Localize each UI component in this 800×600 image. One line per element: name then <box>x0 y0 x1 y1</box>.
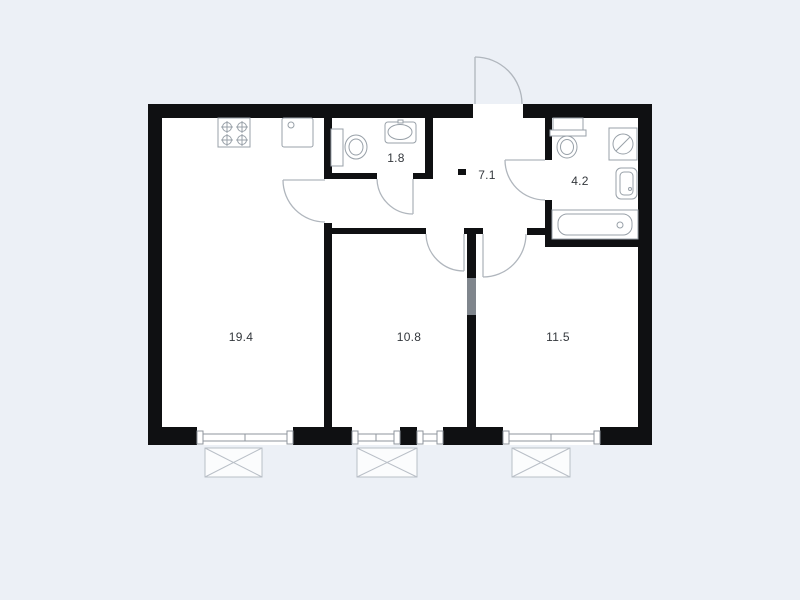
area-label-bathroom: 4.2 <box>571 174 589 188</box>
area-label-living-kitchen: 19.4 <box>229 330 254 344</box>
window-bedroom-right <box>503 427 600 445</box>
wc-washbasin-icon <box>385 120 416 143</box>
window-bedroom-middle <box>352 427 400 445</box>
window-frame <box>423 434 437 441</box>
window-end-cap <box>594 431 600 444</box>
bathroom-washbasin-icon <box>616 168 637 199</box>
area-label-wc: 1.8 <box>387 151 405 165</box>
area-label-bedroom-middle: 10.8 <box>397 330 422 344</box>
bathtub-icon <box>552 210 638 239</box>
area-label-hallway: 7.1 <box>478 168 496 182</box>
floor-plan-canvas: 19.4 10.8 11.5 7.1 1.8 4.2 <box>0 0 800 600</box>
area-label-bedroom-right: 11.5 <box>546 330 570 344</box>
entrance-door <box>475 57 522 104</box>
floor-plan: 19.4 10.8 11.5 7.1 1.8 4.2 <box>0 0 800 600</box>
kitchen-sink-icon <box>282 118 313 147</box>
washing-machine-icon <box>609 128 637 160</box>
door-swing-arc <box>475 57 522 104</box>
window-end-cap <box>394 431 400 444</box>
balcony-box <box>512 448 570 477</box>
cistern <box>331 129 343 166</box>
window-end-cap <box>352 431 358 444</box>
stove-icon <box>218 118 250 147</box>
window-bedroom-middle-narrow <box>417 427 443 445</box>
window-end-cap <box>503 431 509 444</box>
window-end-cap <box>417 431 423 444</box>
window-end-cap <box>287 431 293 444</box>
entrance-opening <box>473 104 523 118</box>
cistern-lid <box>550 130 586 136</box>
window-end-cap <box>437 431 443 444</box>
cistern <box>553 118 583 130</box>
balcony-box <box>357 448 417 477</box>
faucet <box>398 120 403 123</box>
balcony-box <box>205 448 262 477</box>
gray-partition-segment <box>467 278 476 315</box>
window-kitchen <box>197 427 293 445</box>
window-end-cap <box>197 431 203 444</box>
